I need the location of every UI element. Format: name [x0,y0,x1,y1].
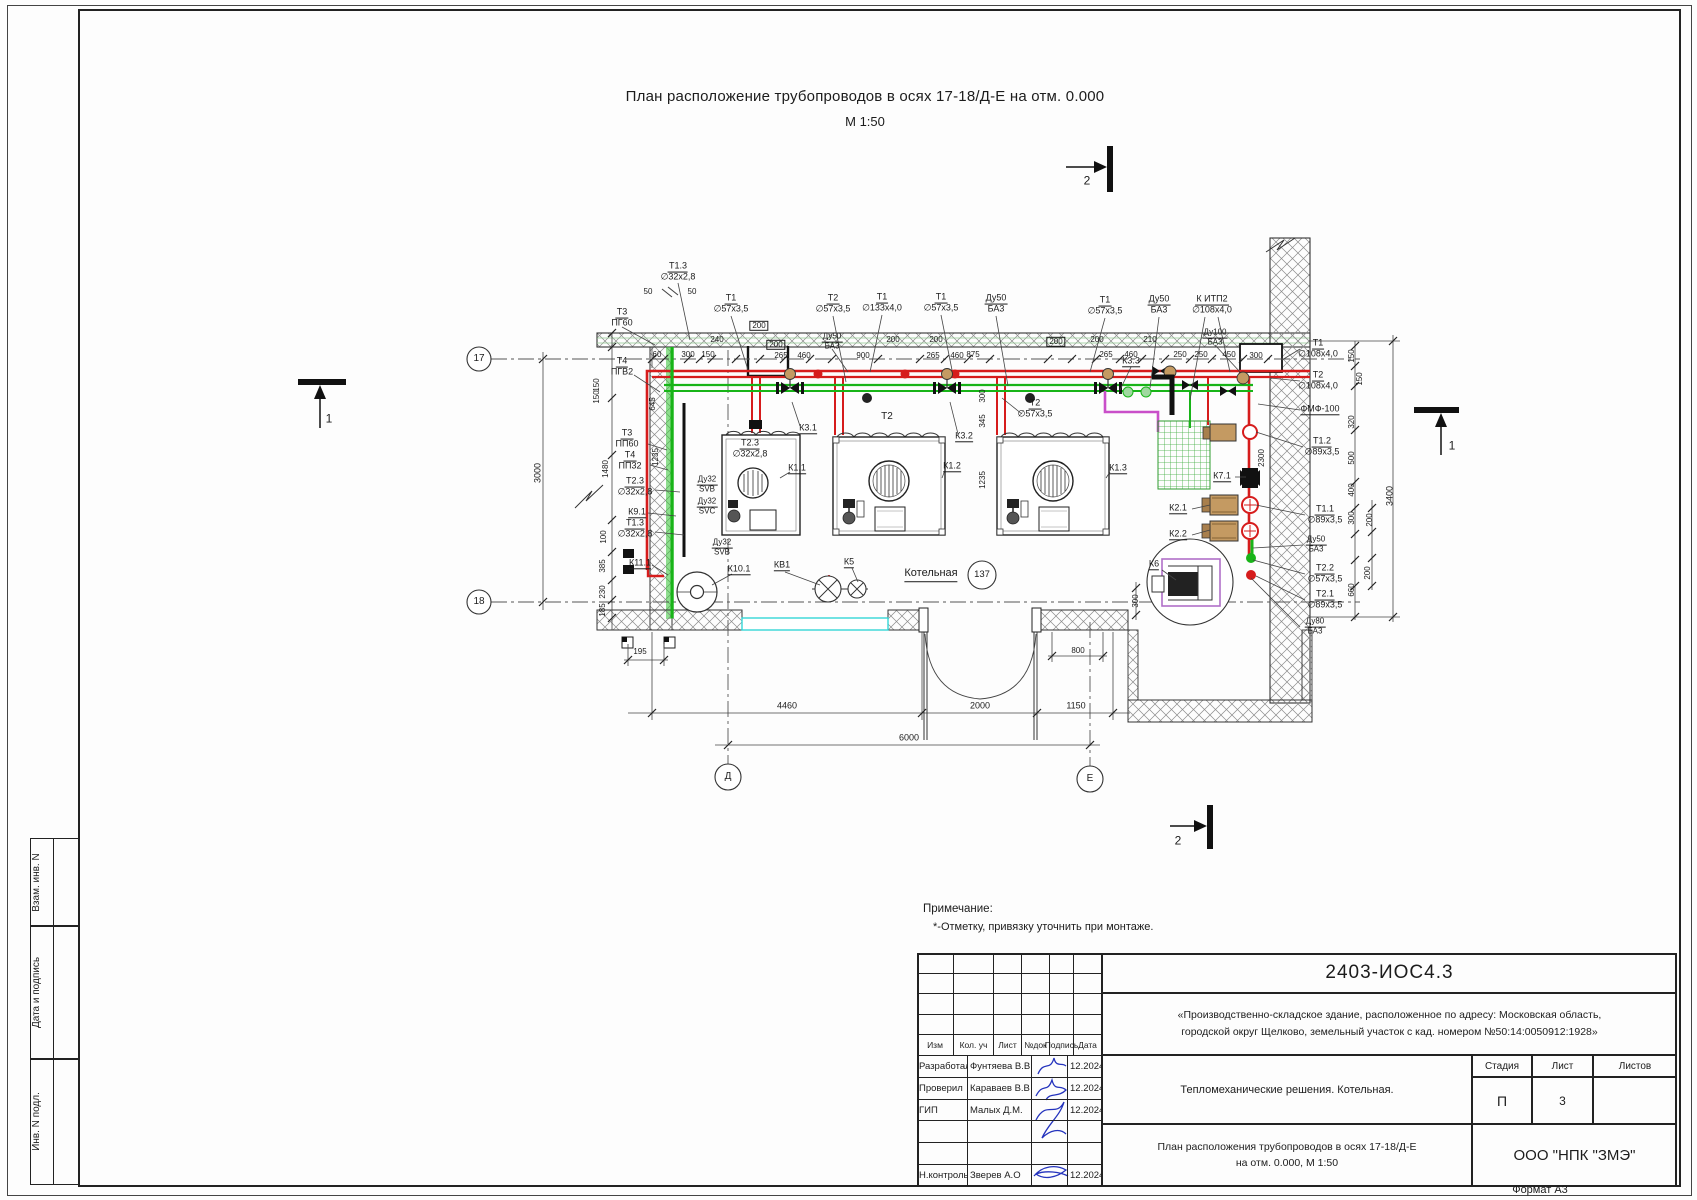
section-title: Тепломеханические решения. Котельная. [1102,1055,1472,1124]
drawing-label: 195 [633,648,646,656]
drawing-label: Ду50БА3 [1148,295,1171,316]
drawing-label: К7.1 [1213,471,1231,482]
stamp-cell: Разработал [917,1056,968,1078]
drawing-label: К1.3 [1109,463,1127,474]
stamp-header-cell: Изм [917,1035,954,1056]
drawing-label: Котельная [904,568,957,582]
drawing-label: 320 [1348,415,1356,428]
sheet-title-cell: План расположения трубопроводов в осях 1… [1102,1124,1472,1187]
drawing-label: К9.1 [628,507,646,518]
drawing-label: 150 [1348,349,1356,362]
drawing-label: Т2.3∅32х2,8 [618,477,653,498]
drawing-label: 300 [1249,352,1262,360]
drawing-label: Д [725,772,732,783]
drawing-label: 300 [681,351,694,359]
drawing-label: 3000 [533,463,542,483]
drawing-label: Ду80БА3 [1305,618,1326,637]
drawing-label: К2.2 [1169,529,1187,540]
stamp-cell: Малых Д.М. [968,1100,1032,1122]
drawing-label: Т2∅57х3,5 [816,294,851,315]
drawing-label: Ду50БА3 [822,333,843,352]
stamp-mini-cell [994,974,1022,995]
drawing-label: 265 [774,352,787,360]
drawing-label: 200 [886,336,899,344]
drawing-label: 660 [1348,583,1356,596]
drawing-label: Т1∅133х4,0 [862,293,902,314]
drawing-label: 400 [1348,483,1356,496]
stamp-mini-cell [917,974,954,995]
drawing-label: Т1.3∅32х2,8 [618,519,653,540]
drawing-label: 875 [966,351,979,359]
drawing-label: 185 [599,603,607,616]
drawing-label: 100 [600,530,608,543]
stamp-mini-grid [917,953,1102,1035]
stamp-cell [917,1143,968,1165]
drawing-label: 345 [979,414,987,427]
stamp-cell [917,1121,968,1143]
drawing-label: 150 [1356,372,1364,385]
stamp-cell [1068,1143,1102,1165]
stamp-mini-cell [994,994,1022,1015]
stamp-cell: ГИП [917,1100,968,1122]
drawing-label: 300 [1132,594,1140,607]
stamp-cell: 12.2024 [1068,1056,1102,1078]
drawing-label: К2.1 [1169,503,1187,514]
drawing-label: Т4ПП32 [619,451,642,472]
drawing-label: К ИТП2∅108х4,0 [1192,295,1232,316]
sheet-header: Лист [1532,1055,1593,1077]
stamp-cell: Фунтяева В.В. [968,1056,1032,1078]
drawing-label: Т1.2∅89х3,5 [1305,437,1340,458]
stamp-mini-cell [954,994,994,1015]
stamp-cell [968,1121,1032,1143]
drawing-label: Т2.3∅32х2,8 [733,439,768,460]
stamp-mini-cell [917,1015,954,1036]
stamp-mini-cell [1022,974,1050,995]
drawing-label: 6000 [899,733,919,742]
project-line2: городской округ Щелково, земельный участ… [1181,1024,1597,1041]
drawing-label: К3.2 [955,431,973,442]
stamp-cell [1032,1121,1068,1143]
drawing-label: 2000 [970,701,990,710]
drawing-label: Т2.2∅57х3,5 [1308,564,1343,585]
project-description: «Производственно-складское здание, распо… [1102,993,1677,1055]
drawing-label: 460 [950,352,963,360]
sheet-title-line1: План расположения трубопроводов в осях 1… [1157,1140,1416,1156]
stamp-cell: Зверев А.О [968,1165,1032,1187]
drawing-label: Т1.3∅32х2,8 [661,262,696,283]
drawing-label: 250 [1173,351,1186,359]
stamp-header-cell: Кол. уч [954,1035,994,1056]
stamp-cell [1032,1143,1068,1165]
drawing-label: Т1∅57х3,5 [924,293,959,314]
stamp-cell: 12.2024 [1068,1100,1102,1122]
drawing-label: 18 [473,597,484,608]
drawing-label: Т3ПГ60 [611,308,632,329]
sheets-header: Листов [1593,1055,1677,1077]
sheet-title-line2: на отм. 0.000, М 1:50 [1236,1156,1338,1172]
stamp-mini-cell [954,953,994,974]
drawing-label: 1 [326,413,333,426]
stage-value: П [1472,1077,1532,1124]
drawing-label: 250 [1194,351,1207,359]
stamp-cell [968,1143,1032,1165]
stamp-cell [1032,1056,1068,1078]
drawing-label: 265 [1099,351,1112,359]
drawing-label: Е [1087,774,1094,785]
drawing-label: 460 [797,352,810,360]
drawing-label: 17 [473,354,484,365]
stamp-mini-cell [1022,953,1050,974]
drawing-label: 1480 [602,460,610,478]
drawing-label: К1.1 [788,463,806,474]
stamp-header-row: ИзмКол. учЛист№докПодписьДата [917,1035,1102,1056]
drawing-label: 3400 [1385,486,1394,506]
drawing-label: Т1∅57х3,5 [714,294,749,315]
drawing-label: 200 [1046,337,1065,347]
drawing-label: Т4ПГВ2 [611,357,633,378]
stamp-header-cell: Дата [1074,1035,1102,1056]
drawing-label: Ду32SVB [697,476,718,495]
drawing-label: 2300 [1258,449,1266,467]
stamp-mini-cell [1022,1015,1050,1036]
drawing-label: Т2∅57х3,5 [1018,399,1053,420]
drawing-label: 210 [1143,336,1156,344]
stamp-mini-cell [1050,994,1074,1015]
drawing-label: К6 [1149,559,1159,570]
stamp-cell: Проверил [917,1078,968,1100]
drawing-label: 50 [644,288,653,296]
drawing-label: 50 [688,288,697,296]
drawing-label: ФМФ-100 [1300,404,1339,415]
stamp-mini-cell [994,1015,1022,1036]
drawing-label: Ду50БА3 [985,294,1008,315]
drawing-label: 2 [1084,175,1091,188]
drawing-label: 200 [929,336,942,344]
drawing-label: 385 [599,559,607,572]
stamp-cell: 12.2024 [1068,1078,1102,1100]
drawing-label: 137 [974,570,990,580]
drawing-label: 230 [599,585,607,598]
drawing-label: Ду50БА3 [1306,536,1327,555]
project-line1: «Производственно-складское здание, распо… [1178,1007,1602,1024]
drawing-label: Т2 [881,412,893,423]
drawing-label: Т1∅108х4,0 [1298,339,1338,360]
format-note: Формат А3 [1460,1184,1620,1196]
stamp-mini-cell [1050,953,1074,974]
stamp-cell: Караваев В.В [968,1078,1032,1100]
drawing-label: 200 [1090,336,1103,344]
stamp-mini-cell [994,953,1022,974]
drawing-label: Т1.1∅89х3,5 [1308,505,1343,526]
drawing-label: Ду32SVC [697,498,718,517]
doc-code: 2403-ИОС4.3 [1102,953,1677,993]
drawing-label: 200 [1364,566,1372,579]
drawing-label: 900 [856,352,869,360]
drawing-label: 240 [710,336,723,344]
drawing-label: К1.2 [943,461,961,472]
drawing-sheet: Взам. инв. N Дата и подпись Инв. N подл.… [0,0,1697,1200]
drawing-label: К3.1 [799,423,817,434]
drawing-label: 200 [749,321,768,331]
stamp-cell [1068,1121,1102,1143]
stamp-mini-cell [954,974,994,995]
drawing-label: 4460 [777,701,797,710]
drawing-label: 1 [1449,440,1456,453]
drawing-label: Т2.1∅89х3,5 [1308,590,1343,611]
drawing-label: 1235 [652,448,660,466]
stamp-mini-cell [917,994,954,1015]
stamp-header-cell: Лист [994,1035,1022,1056]
drawing-label: Т2∅108х4,0 [1298,371,1338,392]
drawing-label: 645 [649,397,657,410]
stamp-mini-cell [1050,1015,1074,1036]
drawing-label: 150 [701,351,714,359]
drawing-label: 460 [1124,351,1137,359]
sheet-number: 3 [1532,1077,1593,1124]
stamp-header-cell: Подпись [1050,1035,1074,1056]
drawing-label: 450 [1222,351,1235,359]
stamp-cell [1032,1165,1068,1187]
stamp-rows: РазработалФунтяева В.В.12.2024ПроверилКа… [917,1056,1102,1187]
stamp-mini-cell [1074,1015,1102,1036]
stamp-mini-cell [1022,994,1050,1015]
drawing-label: Ду32SVB [712,539,733,558]
drawing-label: 300 [1348,511,1356,524]
drawing-label: 150 [593,390,601,403]
stage-header: Стадия [1472,1055,1532,1077]
stamp-mini-cell [917,953,954,974]
drawing-label: КВ1 [774,560,790,571]
stamp-mini-cell [1074,953,1102,974]
drawing-label: 200 [766,340,785,350]
drawing-label: 500 [1348,451,1356,464]
stamp-cell: 12.2024 [1068,1165,1102,1187]
drawing-label: Т3ПП60 [616,429,639,450]
drawing-label: 60 [653,351,662,359]
stamp-cell [1032,1078,1068,1100]
drawing-label: 300 [979,389,987,402]
drawing-label: К11.1 [629,558,651,569]
drawing-label: К10.1 [728,564,751,575]
drawing-label: 1150 [1066,701,1085,710]
drawing-label: Ду100БА3 [1203,329,1228,348]
stamp-mini-cell [1074,994,1102,1015]
stamp-mini-cell [1074,974,1102,995]
drawing-label: 265 [926,352,939,360]
stamp-cell: Н.контроль [917,1165,968,1187]
drawing-label: 200 [1366,513,1374,526]
organization: ООО "НПК "ЗМЭ" [1472,1124,1677,1187]
drawing-label: 2 [1175,835,1182,848]
sheets-total [1593,1077,1677,1124]
drawing-label: 800 [1071,647,1084,655]
drawing-label: Т1∅57х3,5 [1088,296,1123,317]
stamp-mini-cell [1050,974,1074,995]
drawing-label: 1235 [979,471,987,489]
drawing-label: К5 [844,557,854,568]
stamp-cell [1032,1100,1068,1122]
stamp-mini-cell [954,1015,994,1036]
